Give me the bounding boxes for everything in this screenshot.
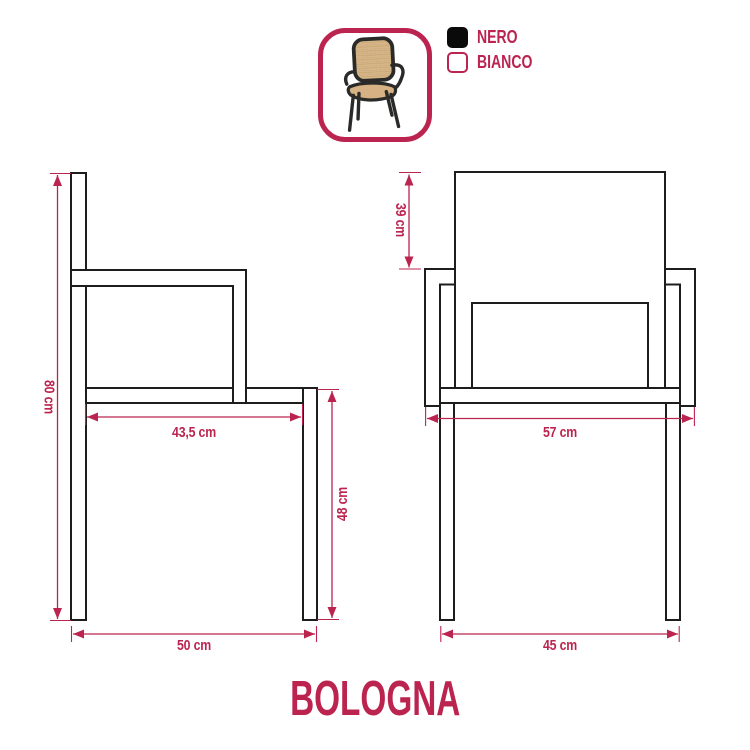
spec-sheet: NERO BIANCO 80 cm: [0, 0, 750, 750]
side-total-depth-label: 50 cm: [177, 637, 211, 653]
front-base-width-label: 45 cm: [543, 637, 577, 653]
side-back-post: [71, 173, 86, 620]
side-seat-height-label: 48 cm: [334, 487, 350, 521]
dimension-side-height: 80 cm: [41, 174, 71, 621]
dimension-side-total-depth: 50 cm: [72, 626, 317, 653]
dimension-front-base-width: 45 cm: [441, 626, 679, 653]
side-height-label: 80 cm: [41, 380, 57, 414]
front-backrest-height-label: 39 cm: [393, 203, 409, 237]
front-view-drawing: [425, 172, 695, 620]
dimension-side-seat-depth: 43,5 cm: [86, 404, 303, 440]
front-overall-width-label: 57 cm: [543, 424, 577, 440]
front-right-leg: [666, 403, 680, 620]
dimension-front-overall-width: 57 cm: [426, 407, 695, 440]
front-seat: [440, 388, 680, 403]
technical-drawing: 80 cm 43,5 cm 48 cm 50 cm: [0, 0, 750, 750]
dimension-front-backrest-height: 39 cm: [393, 173, 421, 270]
front-left-armrest: [425, 269, 455, 406]
side-view-drawing: [71, 173, 317, 620]
side-seat: [86, 388, 317, 403]
product-title: BOLOGNA: [290, 675, 460, 724]
front-left-leg: [440, 403, 454, 620]
front-backrest-panel: [472, 303, 648, 388]
side-armrest: [71, 270, 246, 403]
side-front-leg: [303, 388, 317, 620]
title-section: BOLOGNA: [0, 676, 750, 722]
front-right-armrest: [665, 269, 695, 406]
side-seat-depth-label: 43,5 cm: [172, 424, 216, 440]
dimension-side-seat-height: 48 cm: [317, 390, 350, 620]
